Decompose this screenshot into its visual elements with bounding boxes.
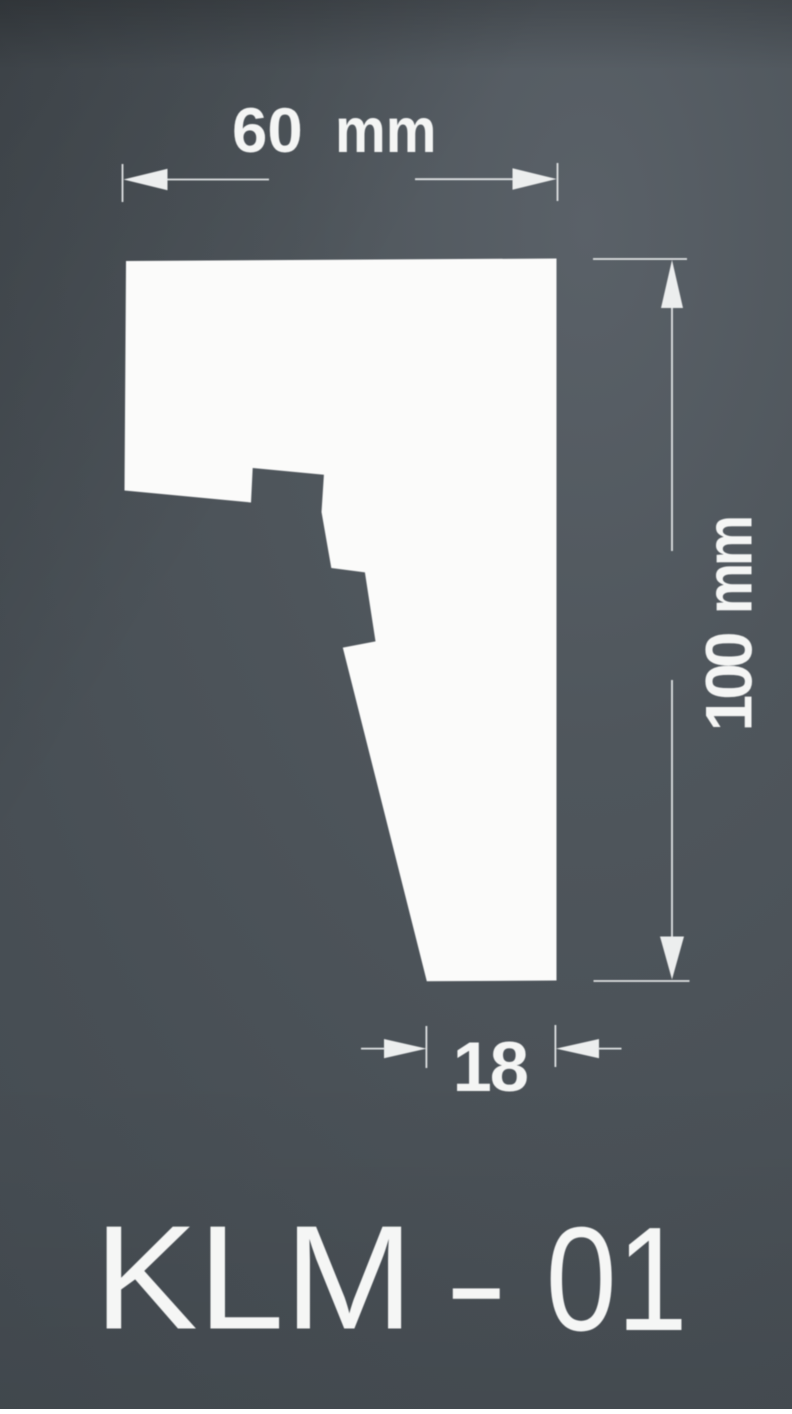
svg-text:KLM: KLM: [94, 1196, 414, 1361]
svg-text:100: 100: [692, 634, 766, 731]
svg-text:mm: mm: [335, 96, 436, 166]
svg-text:01: 01: [546, 1197, 688, 1362]
svg-text:60: 60: [232, 96, 303, 166]
svg-text:18: 18: [453, 1027, 528, 1106]
svg-text:mm: mm: [692, 518, 766, 614]
